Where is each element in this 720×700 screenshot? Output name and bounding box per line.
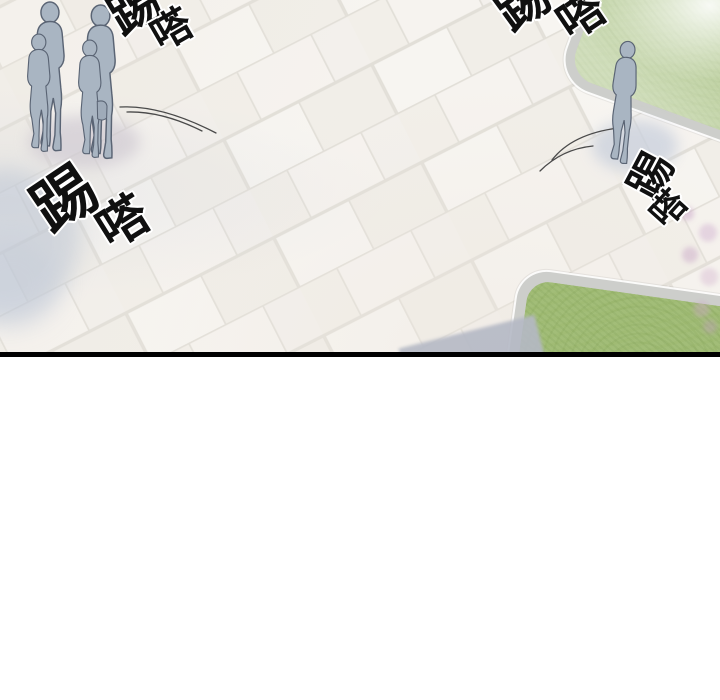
blossom-petals-small [688, 296, 720, 340]
webtoon-page: 踢 嗒 踢 嗒 踢 嗒 踢 嗒 [0, 0, 720, 700]
comic-panel: 踢 嗒 踢 嗒 踢 嗒 踢 嗒 [0, 0, 720, 357]
panel-gutter [0, 357, 720, 700]
group-ground-shadow [28, 116, 140, 168]
